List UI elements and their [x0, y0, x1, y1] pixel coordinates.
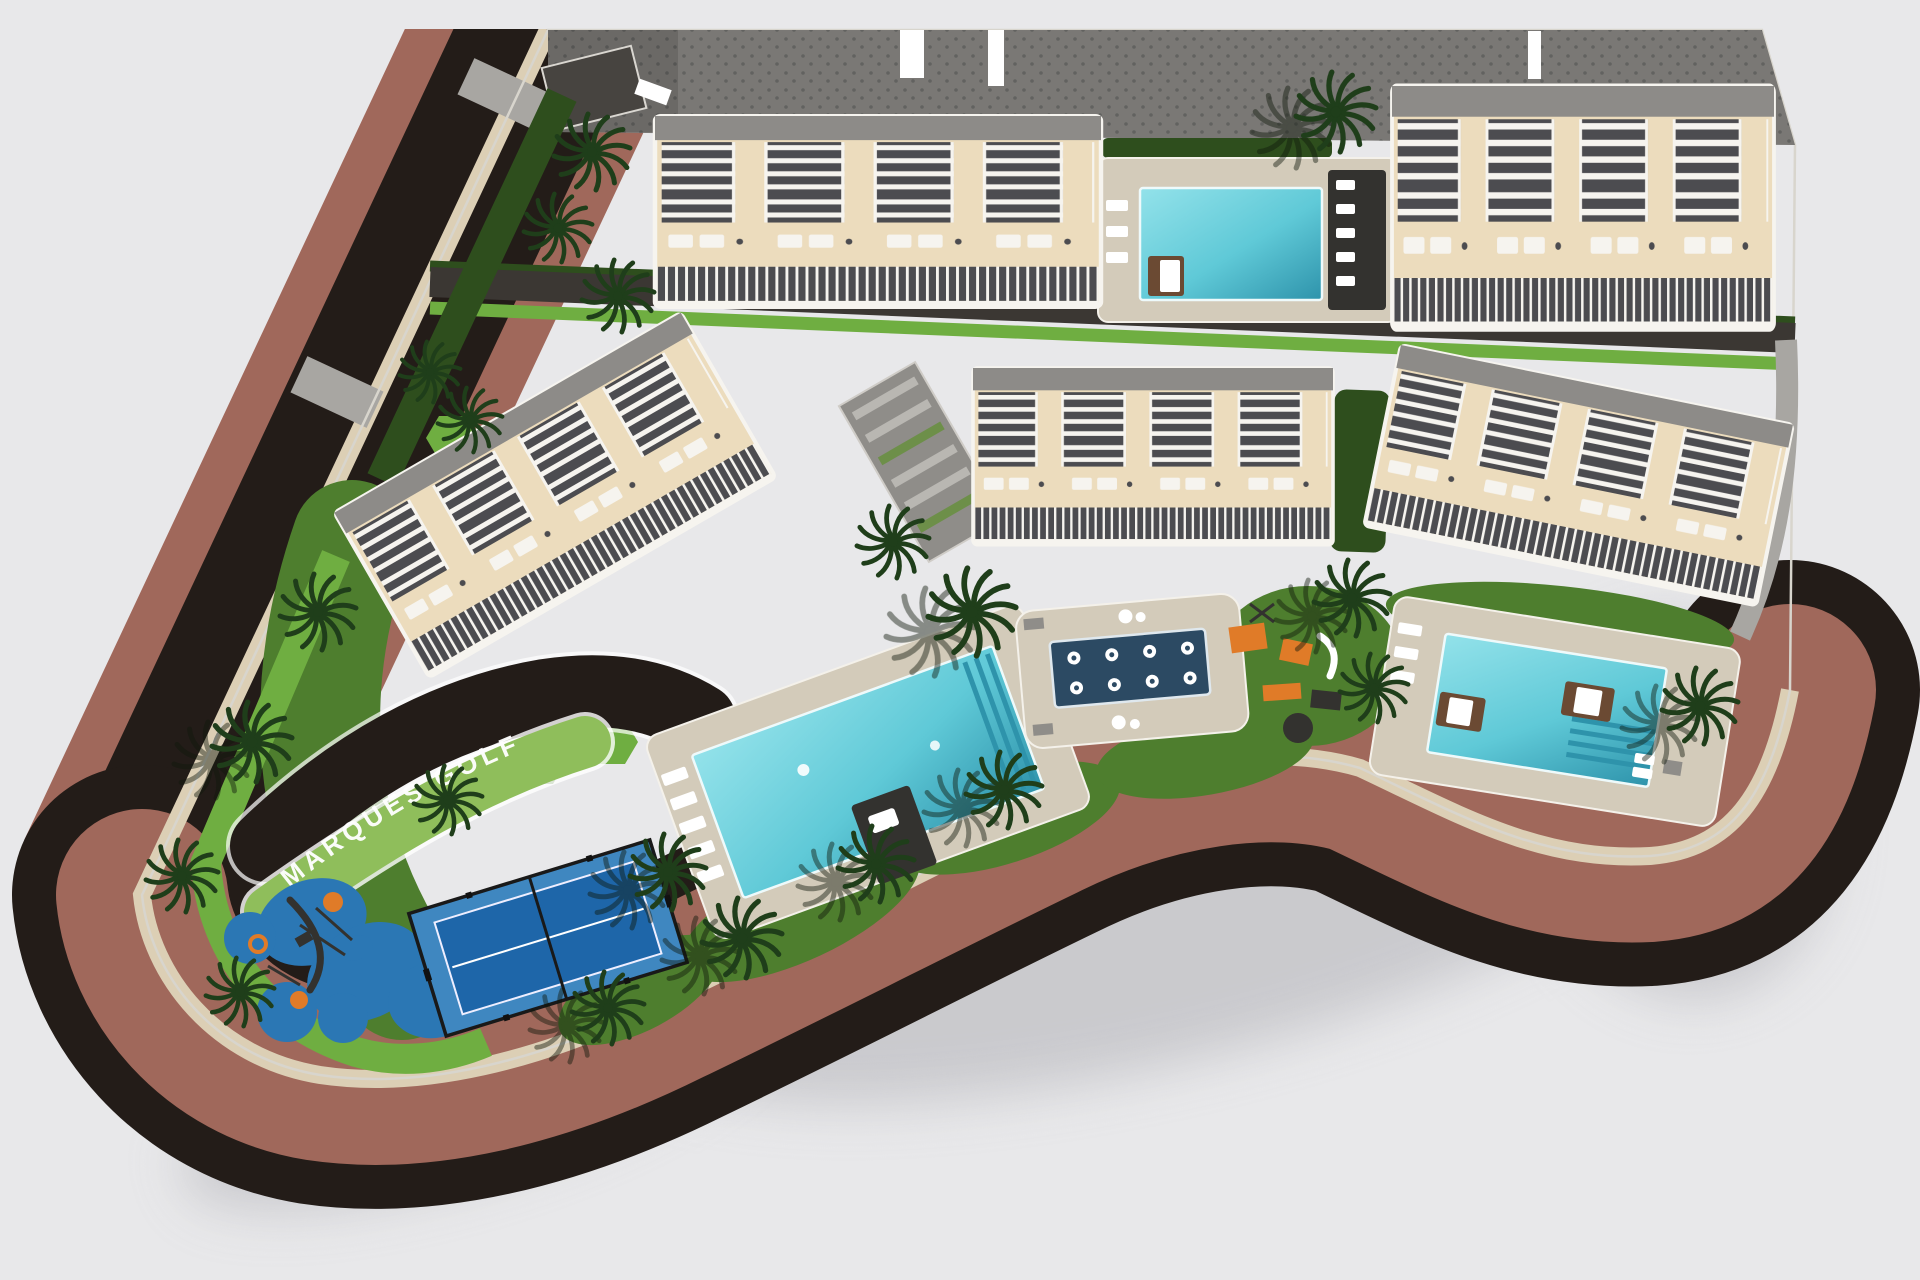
parking-gap: [1528, 31, 1541, 79]
top-crop-mask: [0, 0, 1920, 29]
spring-toy: [1283, 713, 1313, 743]
residential-block-north-east: [1392, 86, 1774, 329]
planter: [1023, 618, 1044, 631]
rubber-surface: [318, 993, 368, 1043]
pool-area-north: [1098, 158, 1398, 322]
lounger-platform: [1328, 170, 1386, 310]
hydromassage-pool: [1049, 629, 1210, 708]
sun-lounger: [1106, 226, 1128, 237]
sun-lounger: [1106, 200, 1128, 211]
parking-gap: [988, 30, 1004, 86]
play-bench: [1310, 689, 1342, 710]
residential-block-mid-central: [973, 368, 1333, 545]
site-plan-svg: MARQUES GOLF: [0, 0, 1920, 1280]
residential-block-north-west: [655, 116, 1101, 307]
site-plan-render: MARQUES GOLF: [0, 0, 1920, 1280]
hydromassage-pool-area: [1015, 592, 1250, 749]
play-item: [323, 892, 343, 912]
play-item: [290, 991, 308, 1009]
play-bench: [1262, 683, 1301, 702]
sun-lounger: [1106, 252, 1128, 263]
planter: [1033, 723, 1054, 736]
parking-gap: [900, 30, 924, 78]
play-equipment: [1228, 623, 1267, 654]
